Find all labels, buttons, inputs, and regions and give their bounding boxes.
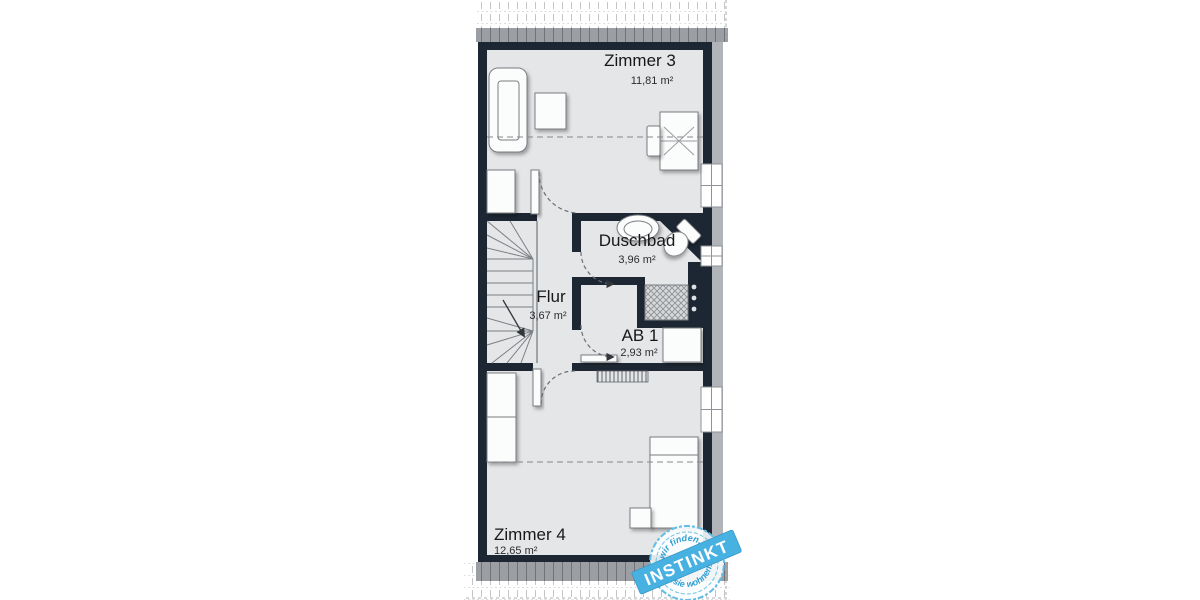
shower-symbol: [645, 285, 688, 320]
chair-symbol: [647, 126, 660, 156]
window-zimmer4: [701, 387, 722, 432]
door-leaf-ab1: [581, 355, 617, 362]
bed-symbol: [650, 437, 698, 528]
room-label-zimmer3: Zimmer 3: [604, 51, 676, 70]
appliance-symbol: [663, 328, 701, 362]
door-leaf-zimmer4: [533, 369, 541, 406]
window-duschbad: [701, 246, 722, 266]
room-label-ab1: AB 1: [622, 326, 659, 345]
desk-symbol: [660, 112, 698, 170]
door-leaf-zimmer3: [531, 170, 539, 214]
room-area-duschbad: 3,96 m²: [618, 254, 656, 266]
wardrobe-symbol: [487, 373, 516, 462]
shaft-connection-dots: [692, 285, 697, 312]
wall-outer-shadow: [712, 42, 723, 562]
room-area-flur: 3,67 m²: [529, 310, 567, 322]
floorplan-page: Zimmer 3 11,81 m² Duschbad 3,96 m² Flur …: [0, 0, 1200, 600]
nightstand-symbol: [630, 508, 651, 528]
room-label-flur: Flur: [536, 287, 566, 306]
window-zimmer3: [701, 164, 722, 207]
room-area-ab1: 2,93 m²: [620, 347, 658, 359]
sofa-symbol: [489, 68, 527, 152]
table-symbol: [535, 93, 566, 129]
roof-edge-band-top: [476, 28, 728, 42]
room-label-zimmer4: Zimmer 4: [494, 525, 566, 544]
radiator-symbol: [597, 371, 648, 382]
floorplan-drawing: Zimmer 3 11,81 m² Duschbad 3,96 m² Flur …: [0, 0, 1200, 600]
room-label-duschbad: Duschbad: [599, 231, 676, 250]
room-area-zimmer4: 12,65 m²: [494, 545, 538, 557]
stair-landing: [487, 170, 515, 213]
room-area-zimmer3: 11,81 m²: [631, 75, 674, 87]
